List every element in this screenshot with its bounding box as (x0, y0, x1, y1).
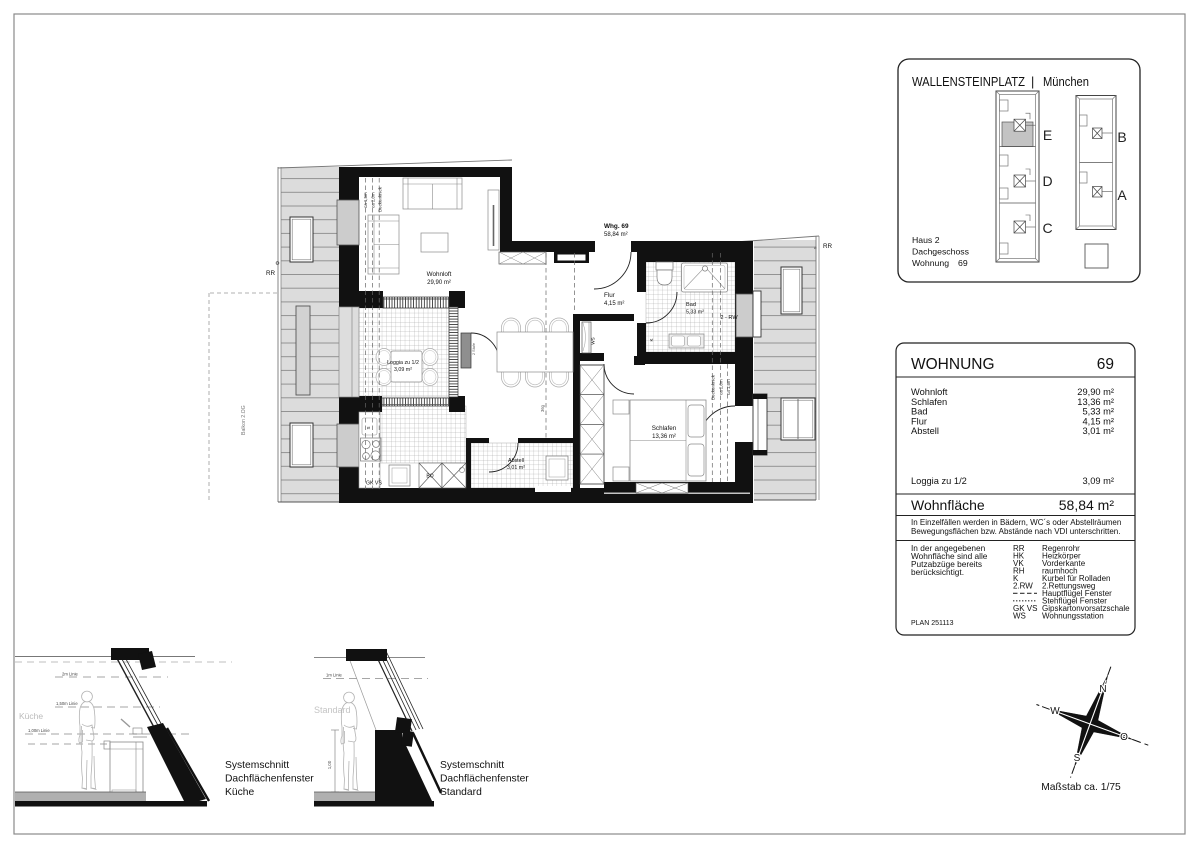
svg-text:Wohnloft: Wohnloft (427, 271, 452, 278)
svg-text:Flur: Flur (911, 416, 927, 426)
svg-text:3,09 m²: 3,09 m² (394, 367, 412, 373)
svg-text:4,15 m²: 4,15 m² (604, 301, 624, 307)
svg-text:PLAN 251113: PLAN 251113 (911, 620, 954, 627)
svg-text:K: K (649, 338, 654, 341)
svg-text:ca 1,5m: ca 1,5m (363, 192, 368, 208)
svg-text:München: München (1043, 74, 1089, 89)
svg-text:Dachflächenfenster: Dachflächenfenster (225, 774, 314, 785)
svg-text:3,09 m²: 3,09 m² (1082, 476, 1114, 486)
svg-text:Bad: Bad (686, 302, 696, 308)
svg-text:ca 1,5m: ca 1,5m (726, 379, 731, 395)
svg-text:BO: BO (426, 474, 433, 480)
svg-text:WS: WS (1013, 612, 1026, 621)
svg-text:Dachgeschoss: Dachgeschoss (912, 247, 970, 257)
svg-text:RR: RR (266, 270, 276, 277)
svg-text:D: D (1042, 173, 1052, 189)
svg-text:1m Linie: 1m Linie (326, 673, 342, 678)
svg-text:S: S (1074, 753, 1081, 764)
svg-text:Wohnungsstation: Wohnungsstation (1042, 612, 1104, 621)
svg-text:Deckenknick: Deckenknick (711, 374, 716, 400)
svg-text:A: A (1117, 187, 1127, 203)
svg-text:Whg. 69: Whg. 69 (604, 223, 629, 230)
svg-text:13,36 m²: 13,36 m² (652, 434, 676, 440)
svg-text:Wohnung: Wohnung (912, 258, 949, 268)
svg-text:W: W (1050, 706, 1060, 717)
svg-text:Wohnloft: Wohnloft (911, 387, 948, 397)
svg-text:Abstell: Abstell (508, 458, 524, 464)
svg-text:69: 69 (958, 258, 968, 268)
svg-text:ca 2,0m: ca 2,0m (371, 192, 376, 208)
svg-text:5,33 m²: 5,33 m² (1082, 407, 1114, 417)
svg-text:Schlafen: Schlafen (652, 425, 677, 432)
svg-text:WALLENSTEINPLATZ: WALLENSTEINPLATZ (912, 74, 1025, 89)
svg-text:Schlafen: Schlafen (911, 397, 947, 407)
svg-text:Bewegungsflächen bzw. Abstände: Bewegungsflächen bzw. Abstände nach VDI … (911, 527, 1120, 536)
svg-text:58,84 m²: 58,84 m² (604, 232, 628, 238)
svg-text:1,00m Linie: 1,00m Linie (28, 728, 50, 733)
svg-text:3,01 m²: 3,01 m² (507, 465, 525, 471)
svg-text:|: | (1031, 74, 1034, 89)
svg-text:Küche: Küche (19, 711, 43, 721)
svg-text:In Einzelfällen werden in Bäde: In Einzelfällen werden in Bädern, WC´s o… (911, 518, 1121, 527)
svg-text:Flur: Flur (604, 292, 615, 299)
svg-text:1,50m Linie: 1,50m Linie (56, 701, 78, 706)
svg-text:WOHNUNG: WOHNUNG (911, 356, 995, 373)
svg-text:N: N (1099, 684, 1106, 695)
svg-text:S: S (366, 426, 371, 429)
svg-text:Standard: Standard (440, 787, 482, 798)
svg-text:Dachflächenfenster: Dachflächenfenster (440, 774, 529, 785)
svg-text:5,33 m²: 5,33 m² (686, 310, 704, 316)
svg-text:Maßstab ca. 1/75: Maßstab ca. 1/75 (1041, 782, 1121, 793)
svg-text:2 Stufe: 2 Stufe (472, 343, 476, 355)
svg-text:3,01 m²: 3,01 m² (1082, 426, 1114, 436)
svg-text:⌀: ⌀ (814, 245, 817, 250)
svg-text:O: O (1120, 732, 1128, 743)
svg-text:Loggia zu 1/2: Loggia zu 1/2 (387, 360, 419, 366)
svg-text:Balkon 2.OG: Balkon 2.OG (241, 405, 247, 435)
svg-text:Systemschnitt: Systemschnitt (225, 760, 289, 771)
svg-text:69: 69 (1097, 356, 1114, 373)
svg-text:E: E (1043, 127, 1052, 143)
svg-text:Standard: Standard (314, 705, 351, 715)
svg-text:Küche: Küche (225, 787, 254, 798)
svg-text:berücksichtigt.: berücksichtigt. (911, 567, 964, 577)
svg-text:Loggia zu 1/2: Loggia zu 1/2 (911, 476, 967, 486)
svg-text:WS: WS (591, 337, 596, 344)
svg-text:4,15 m²: 4,15 m² (1082, 416, 1114, 426)
svg-text:36g: 36g (540, 404, 545, 412)
svg-text:2m Linie: 2m Linie (62, 672, 78, 677)
svg-text:Deckenknick: Deckenknick (378, 186, 383, 212)
svg-text:58,84 m²: 58,84 m² (1059, 497, 1115, 513)
svg-text:B: B (1117, 129, 1126, 145)
svg-text:1,00: 1,00 (327, 760, 332, 769)
svg-text:C: C (1042, 220, 1052, 236)
svg-text:29,90 m²: 29,90 m² (1077, 387, 1114, 397)
svg-text:29,90 m²: 29,90 m² (427, 280, 451, 286)
svg-text:GK VS: GK VS (366, 481, 382, 487)
svg-text:Abstell: Abstell (911, 426, 939, 436)
svg-text:13,36 m²: 13,36 m² (1077, 397, 1114, 407)
svg-text:Bad: Bad (911, 407, 928, 417)
svg-text:ca 2,0m: ca 2,0m (719, 379, 724, 395)
svg-text:Haus 2: Haus 2 (912, 235, 940, 245)
svg-text:Wohnfläche: Wohnfläche (911, 497, 985, 513)
svg-text:Systemschnitt: Systemschnitt (440, 760, 504, 771)
svg-text:2 - RW: 2 - RW (720, 315, 738, 321)
svg-text:2.RW: 2.RW (1013, 582, 1033, 591)
svg-text:RR: RR (823, 243, 833, 250)
